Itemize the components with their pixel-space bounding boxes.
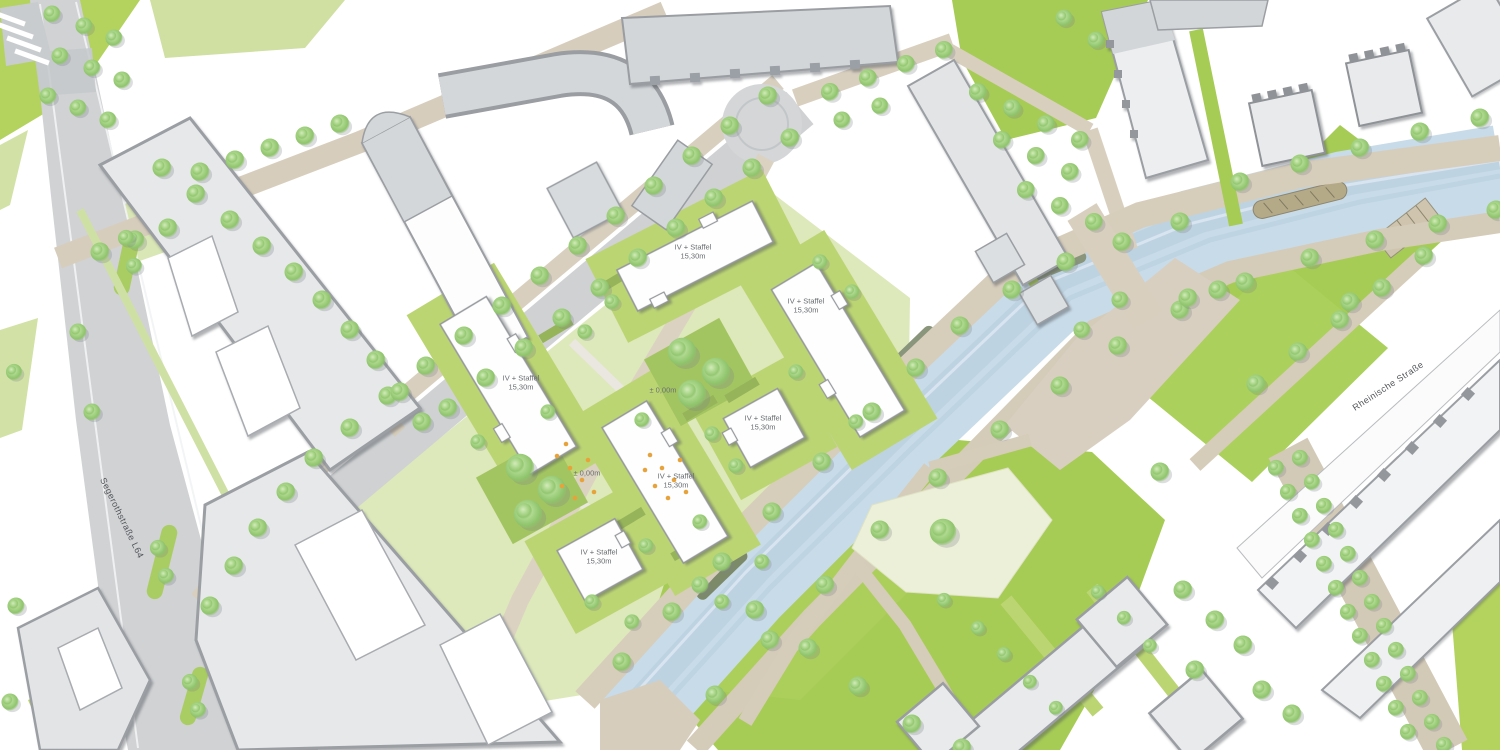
pedestrian-dot: [586, 458, 591, 463]
masterplan-canvas: Segerothstraße L64Rheinische StraßeIV + …: [0, 0, 1500, 750]
pedestrian-dot: [684, 490, 689, 495]
pedestrian-dot: [568, 466, 573, 471]
pedestrian-dot: [678, 458, 683, 463]
sawtooth-building-1: [1247, 82, 1325, 166]
pedestrian-dot: [555, 454, 560, 459]
pedestrian-dot: [666, 496, 671, 501]
pedestrian-dot: [580, 478, 585, 483]
pedestrian-dot: [564, 442, 569, 447]
pedestrian-dot: [653, 484, 658, 489]
pedestrian-dot: [672, 478, 677, 483]
pedestrian-dot: [592, 490, 597, 495]
pedestrian-dot: [573, 496, 578, 501]
pedestrian-dot: [660, 466, 665, 471]
plan-graphics: [0, 0, 1500, 750]
pedestrian-dot: [648, 453, 653, 458]
pedestrian-dot: [643, 468, 648, 473]
sawtooth-building-2: [1344, 42, 1422, 126]
pedestrian-dot: [560, 484, 565, 489]
